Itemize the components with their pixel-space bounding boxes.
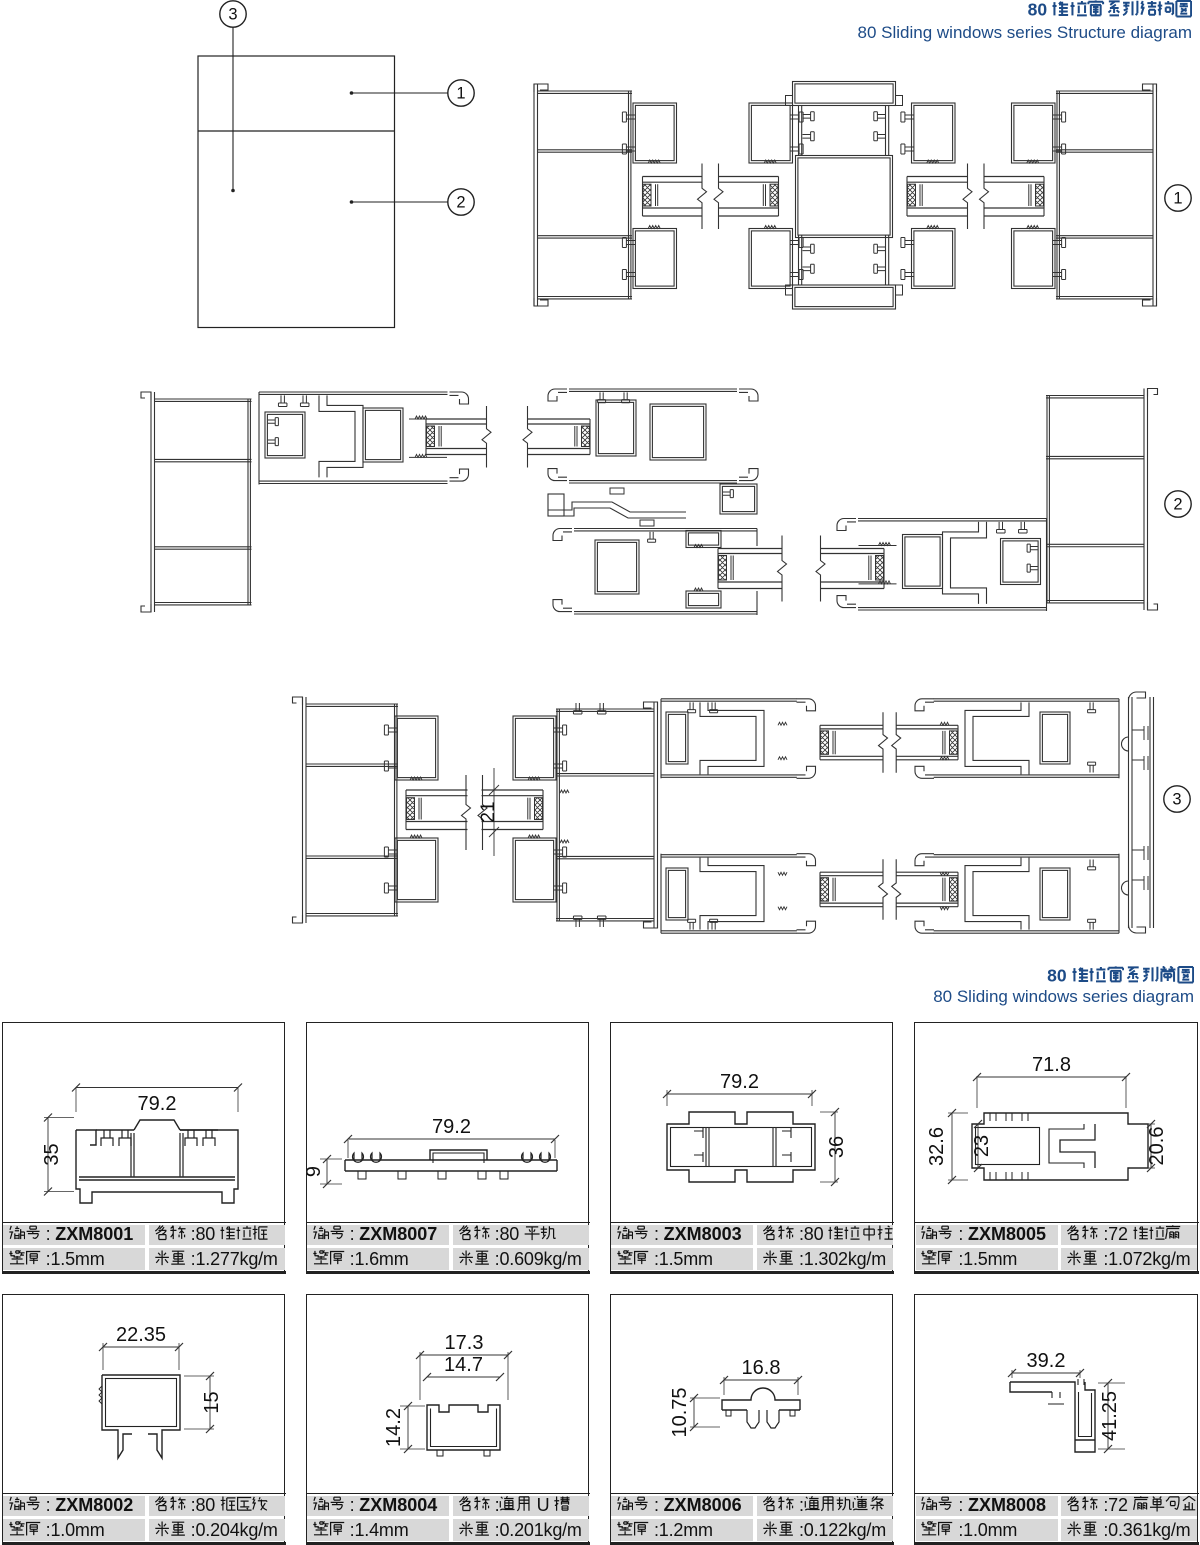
svg-text:2: 2: [456, 194, 465, 212]
svg-text:1: 1: [1173, 190, 1182, 208]
svg-text:3: 3: [228, 6, 237, 24]
svg-text:1: 1: [456, 85, 465, 103]
svg-text:21: 21: [478, 801, 499, 822]
svg-text:2: 2: [1173, 496, 1182, 514]
svg-text:3: 3: [1172, 791, 1181, 809]
